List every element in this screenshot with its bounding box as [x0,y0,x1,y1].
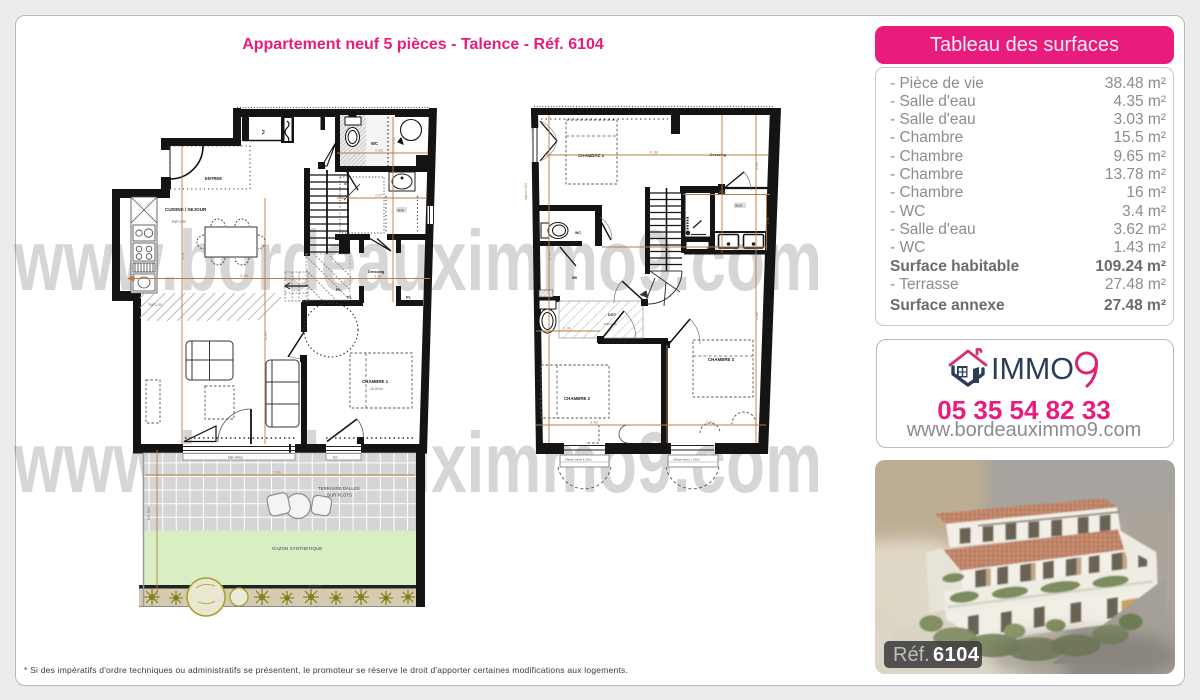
svg-text:Allège vitrée 1.05m: Allège vitrée 1.05m [565,458,592,462]
svg-text:CHAMBRE 2: CHAMBRE 2 [564,396,591,401]
svg-text:3.30: 3.30 [374,274,383,279]
svg-text:ENTREE: ENTREE [205,176,222,181]
svg-text:1.93: 1.93 [754,161,759,170]
svg-text:3.30: 3.30 [263,331,268,340]
svg-text:SB: SB [572,276,577,280]
svg-text:1.91: 1.91 [765,216,770,225]
svg-text:5.18: 5.18 [754,311,759,320]
svg-text:1.40: 1.40 [391,136,396,145]
svg-text:PL: PL [261,130,266,136]
svg-text:SDE: SDE [397,209,405,213]
svg-text:16.00 m²: 16.00 m² [370,387,384,391]
svg-text:H/1.80m: H/1.80m [147,506,151,520]
svg-text:SUR PLOTS: SUR PLOTS [327,493,352,498]
svg-text:4.01: 4.01 [180,251,185,260]
svg-text:PL: PL [406,295,412,300]
svg-text:7.34: 7.34 [273,470,282,475]
svg-text:PL: PL [336,287,342,292]
svg-text:jardinière: jardinière [307,584,322,588]
svg-text:CHAMBRE 3: CHAMBRE 3 [708,357,735,362]
svg-text:baie vitree: baie vitree [228,456,243,460]
svg-text:6104: 6104 [933,644,980,666]
svg-text:2.60: 2.60 [706,420,715,425]
svg-text:DGT: DGT [608,313,617,317]
svg-text:balcon 0.80: balcon 0.80 [524,183,528,200]
svg-text:3.48: 3.48 [590,420,599,425]
svg-text:2.83: 2.83 [375,148,384,153]
svg-text:3.98: 3.98 [240,273,249,278]
svg-text:TMP 2.00: TMP 2.00 [148,303,162,307]
svg-text:WC: WC [371,141,378,146]
svg-text:6.38: 6.38 [650,150,659,155]
svg-text:Réf.: Réf. [893,644,930,666]
svg-text:CUISINE / SEJOUR: CUISINE / SEJOUR [165,207,207,212]
svg-text:1.38: 1.38 [563,326,572,331]
svg-text:CHAMBRE 1: CHAMBRE 1 [362,379,389,384]
svg-text:CHAMBRE 1: CHAMBRE 1 [578,153,605,158]
svg-text:SDE: SDE [735,204,743,208]
svg-text:fen.: fen. [333,456,338,460]
svg-text:WC: WC [575,231,581,235]
svg-text:GAZON SYNTHETIQUE: GAZON SYNTHETIQUE [272,546,322,551]
svg-text:Allège vitrée 1.05m: Allège vitrée 1.05m [673,458,700,462]
svg-text:PL: PL [347,295,353,300]
svg-text:IMMO: IMMO [991,352,1074,386]
svg-text:PdP 2.50: PdP 2.50 [172,220,186,224]
svg-text:3.70: 3.70 [547,251,552,260]
svg-text:2.02: 2.02 [719,189,728,194]
svg-text:TERRASSE DALLES: TERRASSE DALLES [318,486,360,491]
svg-text:2.87: 2.87 [375,193,384,198]
